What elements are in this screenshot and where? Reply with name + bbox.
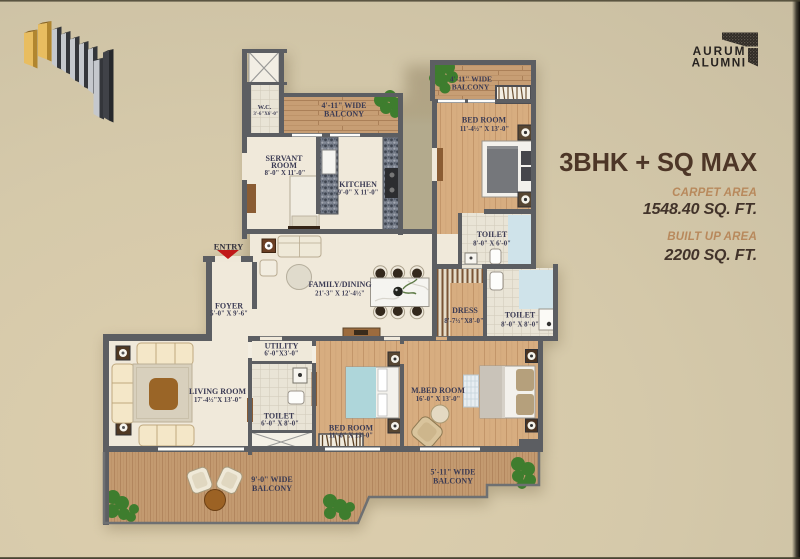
svg-text:TOILET: TOILET <box>477 230 508 239</box>
svg-text:LIVING ROOM: LIVING ROOM <box>189 387 247 396</box>
svg-text:BUILT UP AREA: BUILT UP AREA <box>667 231 757 243</box>
svg-text:5'-0" X 9'-6": 5'-0" X 9'-6" <box>210 311 248 318</box>
svg-text:CARPET AREA: CARPET AREA <box>672 187 757 199</box>
svg-text:UTILITY: UTILITY <box>265 342 299 351</box>
svg-text:ROOM: ROOM <box>271 161 297 170</box>
svg-text:KITCHEN: KITCHEN <box>339 180 377 189</box>
svg-text:M.BED ROOM: M.BED ROOM <box>411 386 465 395</box>
svg-text:1548.40 SQ. FT.: 1548.40 SQ. FT. <box>643 201 757 218</box>
svg-text:8'-7½"X8'-0": 8'-7½"X8'-0" <box>444 318 484 325</box>
svg-text:3'-6"X6'-0": 3'-6"X6'-0" <box>253 112 278 117</box>
svg-text:8'-0" X 11'-0": 8'-0" X 11'-0" <box>265 170 306 177</box>
svg-text:11'-4½" X 13'-0": 11'-4½" X 13'-0" <box>460 126 509 133</box>
svg-text:11'-0" X 13'-0": 11'-0" X 13'-0" <box>329 433 373 440</box>
svg-text:FAMILY/DINING: FAMILY/DINING <box>308 280 371 289</box>
svg-text:3BHK + SQ MAX: 3BHK + SQ MAX <box>559 149 757 177</box>
svg-text:DRESS: DRESS <box>452 306 478 315</box>
svg-text:BALCONY: BALCONY <box>252 484 292 493</box>
svg-text:2200 SQ. FT.: 2200 SQ. FT. <box>664 247 757 264</box>
svg-text:9'-0" X 11'-0": 9'-0" X 11'-0" <box>338 190 379 197</box>
svg-text:W.C.: W.C. <box>258 104 272 111</box>
svg-text:BED ROOM: BED ROOM <box>329 424 374 433</box>
svg-text:6'-0"X3'-0": 6'-0"X3'-0" <box>264 351 299 358</box>
svg-text:TOILET: TOILET <box>264 412 295 421</box>
svg-text:9'-0" WIDE: 9'-0" WIDE <box>251 475 292 484</box>
svg-text:8'-0" X 6'-0": 8'-0" X 6'-0" <box>473 241 511 248</box>
svg-text:17'-4½"X 13'-0": 17'-4½"X 13'-0" <box>194 397 242 404</box>
svg-text:FOYER: FOYER <box>215 302 243 311</box>
svg-text:BALCONY: BALCONY <box>433 477 473 486</box>
svg-text:16'-0" X 13'-0": 16'-0" X 13'-0" <box>416 396 461 403</box>
svg-text:BALCONY: BALCONY <box>324 110 364 119</box>
svg-text:BALCONY: BALCONY <box>452 83 490 92</box>
svg-text:TOILET: TOILET <box>505 311 536 320</box>
svg-text:8'-0" X 8'-0": 8'-0" X 8'-0" <box>501 322 539 329</box>
svg-text:BED ROOM: BED ROOM <box>462 116 507 125</box>
svg-text:6'-0" X 8'-0": 6'-0" X 8'-0" <box>261 421 299 428</box>
svg-text:21'-3" X 12'-4½": 21'-3" X 12'-4½" <box>315 291 365 298</box>
svg-text:ALUMNI: ALUMNI <box>692 56 747 70</box>
svg-text:5'-11" WIDE: 5'-11" WIDE <box>431 468 476 477</box>
